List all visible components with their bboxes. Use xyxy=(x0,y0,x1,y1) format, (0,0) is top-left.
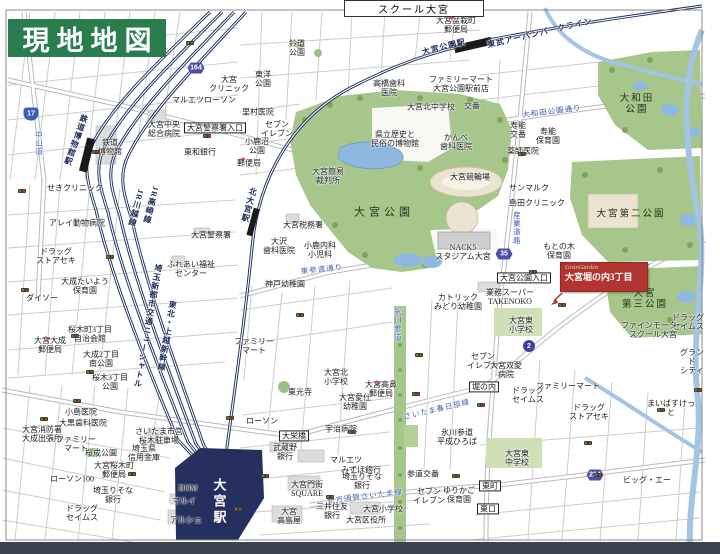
map-label: 大黒歯科医院 xyxy=(59,418,107,427)
map-label: マルエツ xyxy=(330,455,362,464)
map-label: 堀の内 xyxy=(469,381,499,392)
top-edge-label-text: スクール大宮 xyxy=(378,1,450,16)
map-label: 交番 xyxy=(464,101,480,110)
map-label: 寿能 交番 xyxy=(510,121,526,139)
map-label: ファミリー マート xyxy=(56,435,96,453)
map-label: サンマルク xyxy=(509,183,549,192)
map-label: 氷川参道 xyxy=(393,308,402,342)
map-label: 神戸幼稚園 xyxy=(265,279,305,288)
map-label: 島田クリニック xyxy=(509,198,565,207)
traffic-signal-icon xyxy=(326,495,334,499)
map-label: グランド シティ xyxy=(678,348,706,376)
map-label: 大宮盆栽町 郵便局 xyxy=(436,16,476,34)
traffic-signal-icon xyxy=(694,388,702,392)
map-label: ファミリー マート xyxy=(234,337,274,355)
map-label: 大沢 歯科医院 xyxy=(263,237,295,255)
map-label: 大宮東 小学校 xyxy=(509,316,533,334)
map-label: マルイ xyxy=(172,496,196,505)
post-office-icon: 〒 xyxy=(45,336,51,345)
post-office-icon: 〒 xyxy=(375,380,381,389)
traffic-signal-icon xyxy=(73,399,81,403)
site-map: せきクリニックアレイ動物病院ドラッグ ストアセキ大成たいよう 保育園ダイソー大宮… xyxy=(0,0,720,554)
map-label: セブン イレブン xyxy=(413,487,445,505)
traffic-signal-icon xyxy=(40,417,48,421)
map-label: ゆりかご 保育園 xyxy=(443,486,475,504)
map-label: 武蔵野 銀行 xyxy=(273,443,297,461)
map-label: さいたま市営 桜木駐車場 xyxy=(135,427,183,445)
map-label: ローソン100 xyxy=(50,474,94,483)
map-label: 大和田公園通り xyxy=(522,104,582,120)
map-label: さいたま春日部線 xyxy=(403,398,471,422)
traffic-signal-icon xyxy=(234,507,242,511)
map-label: 大宮警察署入口 xyxy=(184,122,246,133)
page-title: 現地地図 xyxy=(16,19,159,58)
map-label: 大宮東 中学校 xyxy=(505,449,529,467)
route-shield-17: 17 xyxy=(24,108,39,121)
map-label: 小島医院 xyxy=(65,407,97,416)
map-label: 鉄道博物館駅 xyxy=(62,113,89,167)
map-label: セブン イレブン xyxy=(467,352,499,370)
map-label: ドラッグ セイムス xyxy=(672,313,704,331)
map-label: ふれあい福祉 センター xyxy=(167,260,215,278)
map-label: 東参道通り xyxy=(300,263,343,276)
traffic-signal-icon xyxy=(584,441,592,445)
traffic-signal-icon xyxy=(92,150,100,154)
map-label: 参道交番 xyxy=(407,469,439,478)
map-label: DOM xyxy=(179,483,198,492)
map-label: 北大宮駅 xyxy=(240,186,258,223)
traffic-signal-icon xyxy=(226,416,234,420)
map-label: 大宮消防署 大成出張所 xyxy=(22,425,62,443)
map-label: せきクリニック xyxy=(47,183,103,192)
post-office-icon: 〒 xyxy=(109,460,115,469)
map-label: 埼玉りそな 銀行 xyxy=(342,472,382,490)
map-label: 大宮競輪場 xyxy=(450,172,490,181)
map-label: 大宮公園 xyxy=(354,207,414,220)
map-label: 埼玉新都市交通ニューシャトル xyxy=(133,263,164,389)
traffic-signal-icon xyxy=(594,473,602,477)
map-label: セブン イレブン xyxy=(261,120,293,138)
map-label: ドラッグ セイムス xyxy=(512,386,544,404)
map-label: 大宮北中学校 xyxy=(407,102,455,111)
map-label: 大宮税務署 xyxy=(283,220,323,229)
traffic-signal-icon xyxy=(21,288,29,292)
map-label: 大宮警察署 xyxy=(191,230,231,239)
map-label: 東北・上越新幹線 xyxy=(156,300,178,373)
map-label: 東口 xyxy=(477,503,499,514)
property-marker: GranGarden 大宮堀の内3丁目 xyxy=(560,262,648,292)
map-label: 大宮愛仕 幼稚園 xyxy=(339,393,371,411)
map-label: 中山道 xyxy=(34,130,43,156)
top-edge-label: スクール大宮 xyxy=(344,0,484,17)
traffic-signal-icon xyxy=(261,474,269,478)
traffic-signal-icon xyxy=(86,370,94,374)
map-label: 産業道路 xyxy=(512,211,521,245)
map-label: ファミリーマート 大宮公園駅前店 xyxy=(429,75,493,93)
traffic-signal-icon xyxy=(477,403,485,407)
map-label: アルシェ xyxy=(170,515,202,524)
map-label: 新方須賀さいたま線 xyxy=(327,488,404,506)
map-label: 大成2丁目 南公園 xyxy=(83,350,119,368)
map-label: 桜成公園 xyxy=(85,448,117,457)
map-label: 大宮小学校 xyxy=(363,504,403,513)
map-label: NACK5 スタジアム大宮 xyxy=(435,243,490,261)
map-label: 大宮北 小学校 xyxy=(324,368,348,386)
traffic-signal-icon xyxy=(296,313,304,317)
map-label: 小鹿沼 公園 xyxy=(245,137,269,155)
map-label: もとの木 保育園 xyxy=(543,242,575,260)
traffic-signal-icon xyxy=(203,134,211,138)
map-label: カトリック みどり幼稚園 xyxy=(434,293,482,311)
map-label: アレイ動物病院 xyxy=(49,218,105,227)
traffic-signal-icon xyxy=(106,255,114,259)
map-label: 大宮公園入口 xyxy=(497,272,551,283)
map-label: 小鹿内科 小児科 xyxy=(304,241,336,259)
map-label: 東武アーバンパークライン xyxy=(486,16,593,49)
traffic-signal-icon xyxy=(18,189,26,193)
traffic-signal-icon xyxy=(518,152,526,156)
map-label: ファインモーター スクール大宮 xyxy=(621,321,685,339)
traffic-signal-icon xyxy=(415,353,423,357)
map-label: 大宮簡易 裁判所 xyxy=(312,167,344,185)
map-label: ドラッグ ストアセキ xyxy=(36,247,76,265)
map-label: マルエツ xyxy=(172,95,204,104)
map-label: ドラッグ セイムス xyxy=(66,504,98,522)
traffic-signal-icon xyxy=(529,270,537,274)
map-label: ローソン xyxy=(246,416,278,425)
traffic-signal-icon xyxy=(452,474,460,478)
traffic-signal-icon xyxy=(71,334,79,338)
map-label: みずほ銀行 xyxy=(341,465,381,474)
map-label: 大栄橋 xyxy=(279,430,309,441)
map-label: 大宮門街 SQUARE xyxy=(291,480,323,498)
map-label: まいばすけっと xyxy=(647,399,696,417)
map-label: ファミリーマート xyxy=(536,381,600,390)
map-label: ダイソー xyxy=(26,293,58,302)
map-title-banner: 現地地図 xyxy=(8,19,166,57)
map-label: 三井住友 銀行 xyxy=(316,502,348,520)
traffic-signal-icon xyxy=(348,430,356,434)
map-label: ローソン xyxy=(204,95,236,104)
map-label: 埼玉県 信用金庫 xyxy=(128,444,160,462)
map-label: 桜木3丁目 公園 xyxy=(92,373,128,391)
map-label: 大宮中央 総合病院 xyxy=(148,120,180,138)
map-label: 鈴道 公園 xyxy=(289,39,305,57)
map-label: 大宮駅 xyxy=(211,478,226,526)
map-label: 大宮公園駅 xyxy=(421,37,467,57)
map-label: かんべ 歯科医院 xyxy=(440,133,472,151)
map-label: JR川越線 xyxy=(127,188,145,228)
post-office-icon: 〒 xyxy=(240,156,246,165)
map-label: 鉄道 博物館 xyxy=(98,138,122,156)
map-label: 大宮 第三公園 xyxy=(622,289,668,311)
traffic-signal-icon xyxy=(186,41,194,45)
map-label: 大宮双愛 病院 xyxy=(490,361,522,379)
map-label: 高橋歯科 医院 xyxy=(373,79,405,97)
map-label: 大和田 公園 xyxy=(620,94,655,116)
map-label: 東和銀行 xyxy=(184,147,216,156)
map-label: 大宮 クリニック xyxy=(209,75,249,93)
map-label: 里村医院 xyxy=(242,107,274,116)
traffic-signal-icon xyxy=(128,472,136,476)
property-name: 大宮堀の内3丁目 xyxy=(565,272,643,284)
property-marker-arrow xyxy=(548,292,564,306)
map-label: 東光寺 xyxy=(288,387,312,396)
map-label: JR高崎線 xyxy=(142,185,160,225)
traffic-signal-icon xyxy=(412,392,420,396)
map-label: 大宮区役所 xyxy=(346,515,386,524)
map-label: 業務スーパー TAKENOKO xyxy=(486,288,534,306)
map-label: ドラッグ ストアセキ xyxy=(569,403,609,421)
map-label: 東洋 公園 xyxy=(255,70,271,88)
map-label: ビッグ・エー xyxy=(623,475,671,484)
map-label: 東町 xyxy=(479,480,501,491)
traffic-signal-icon xyxy=(657,408,665,412)
route-shield-35: 35 xyxy=(496,249,513,260)
route-shield-164: 164 xyxy=(188,63,205,74)
map-label: 埼玉りそな 銀行 xyxy=(93,486,133,504)
bottom-bar xyxy=(0,542,720,554)
map-label: 寿能 保育園 xyxy=(536,127,560,145)
map-label: 大宮第二公園 xyxy=(596,210,665,221)
map-label: 大成たいよう 保育園 xyxy=(61,277,109,295)
map-label: 県立歴史と 民俗の博物館 xyxy=(371,130,419,148)
map-label: 氷川参道 平成ひろば xyxy=(437,428,477,446)
map-label: 大宮 高島屋 xyxy=(277,507,301,525)
route-shield-2: 2 xyxy=(523,340,535,352)
